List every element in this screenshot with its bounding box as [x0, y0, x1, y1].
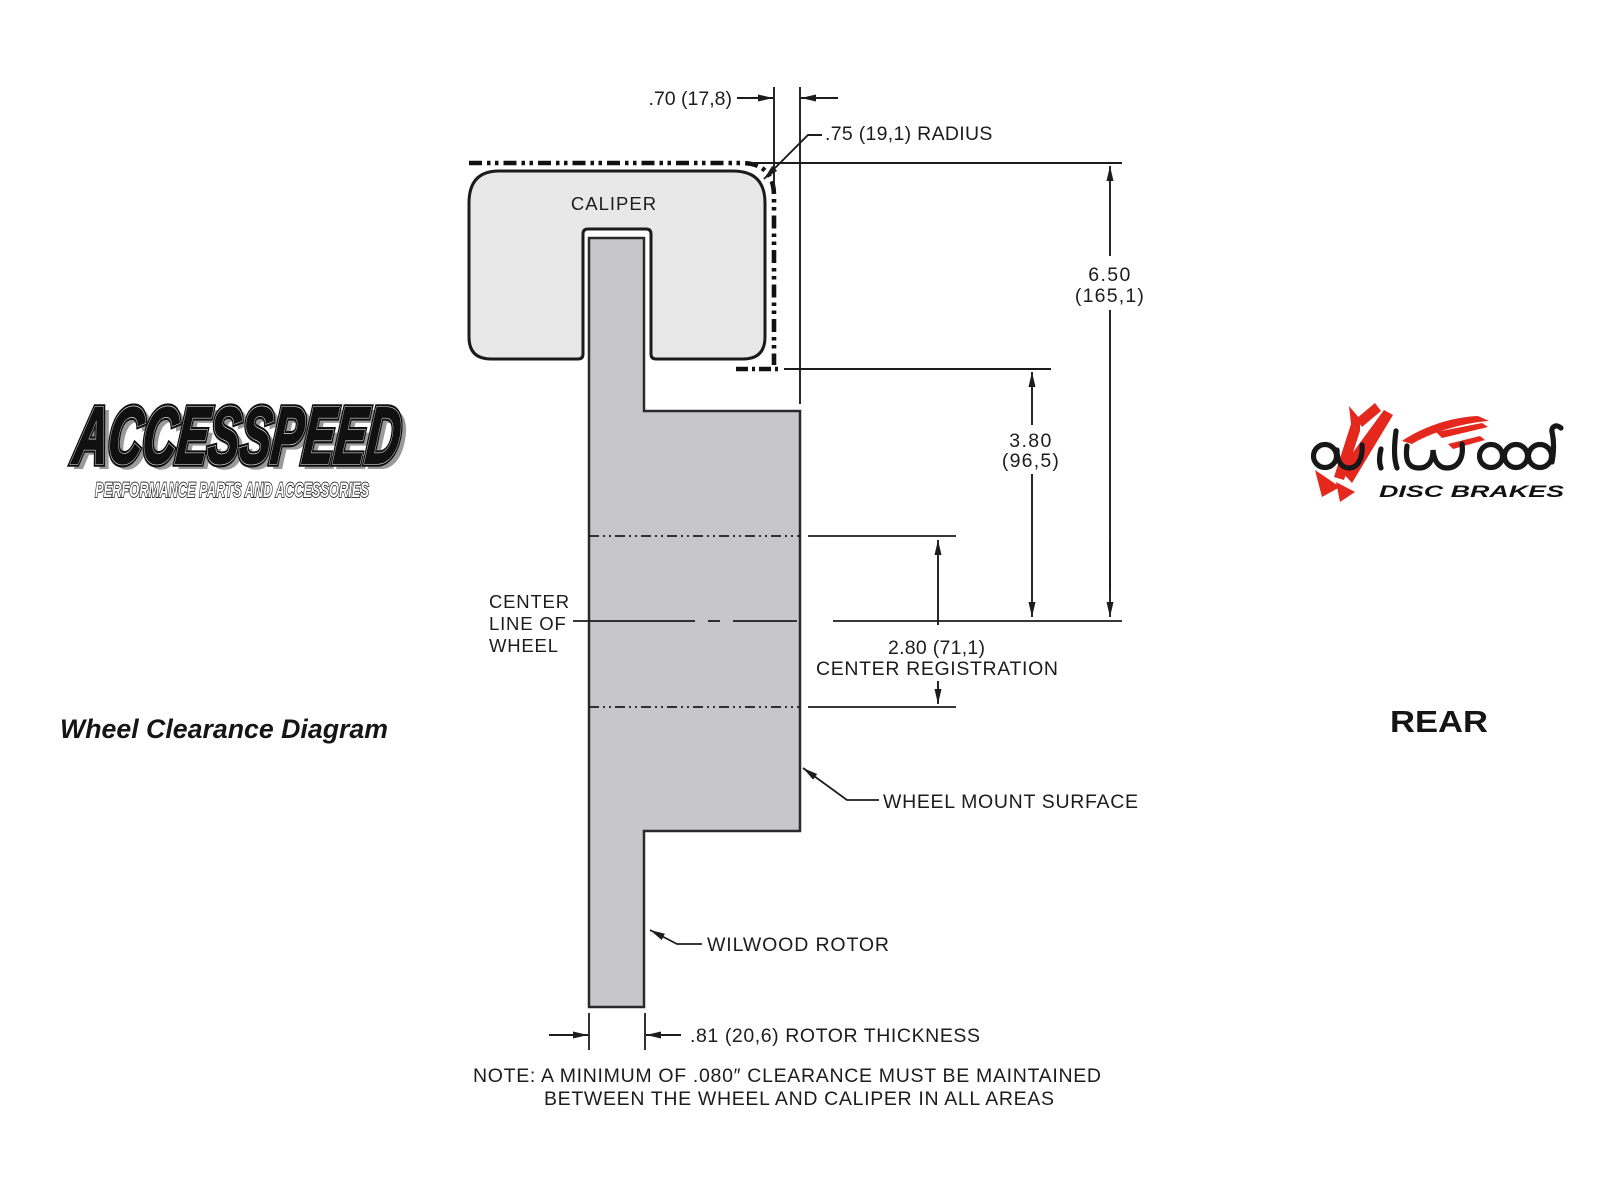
svg-text:WHEEL: WHEEL [489, 635, 559, 656]
svg-text:.81 (20,6) ROTOR THICKNESS: .81 (20,6) ROTOR THICKNESS [690, 1025, 980, 1047]
svg-text:CENTER: CENTER [489, 591, 570, 612]
svg-text:CENTER REGISTRATION: CENTER REGISTRATION [816, 658, 1058, 680]
svg-text:6.50: 6.50 [1088, 264, 1132, 286]
svg-text:LINE OF: LINE OF [489, 613, 567, 634]
svg-text:.75 (19,1) RADIUS: .75 (19,1) RADIUS [825, 123, 993, 145]
svg-text:(165,1): (165,1) [1075, 285, 1145, 307]
svg-text:PERFORMANCE PARTS AND ACCESSOR: PERFORMANCE PARTS AND ACCESSORIES [95, 479, 369, 502]
svg-text:Wheel Clearance Diagram: Wheel Clearance Diagram [60, 714, 388, 744]
svg-text:CALIPER: CALIPER [571, 193, 657, 214]
svg-text:ACCESSPEED: ACCESSPEED [69, 390, 406, 480]
svg-text:DISC BRAKES: DISC BRAKES [1379, 482, 1565, 501]
svg-text:WHEEL MOUNT SURFACE: WHEEL MOUNT SURFACE [883, 791, 1138, 813]
svg-text:BETWEEN THE WHEEL AND CALIPER: BETWEEN THE WHEEL AND CALIPER IN ALL ARE… [544, 1088, 1054, 1110]
svg-text:WILWOOD ROTOR: WILWOOD ROTOR [707, 934, 889, 956]
svg-text:(96,5): (96,5) [1002, 450, 1060, 472]
svg-text:2.80 (71,1): 2.80 (71,1) [888, 637, 985, 659]
svg-text:NOTE: A MINIMUM OF .080″ CLEAR: NOTE: A MINIMUM OF .080″ CLEARANCE MUST … [473, 1065, 1101, 1087]
svg-text:3.80: 3.80 [1009, 430, 1053, 452]
svg-text:REAR: REAR [1390, 704, 1488, 739]
svg-text:.70 (17,8): .70 (17,8) [649, 88, 732, 110]
